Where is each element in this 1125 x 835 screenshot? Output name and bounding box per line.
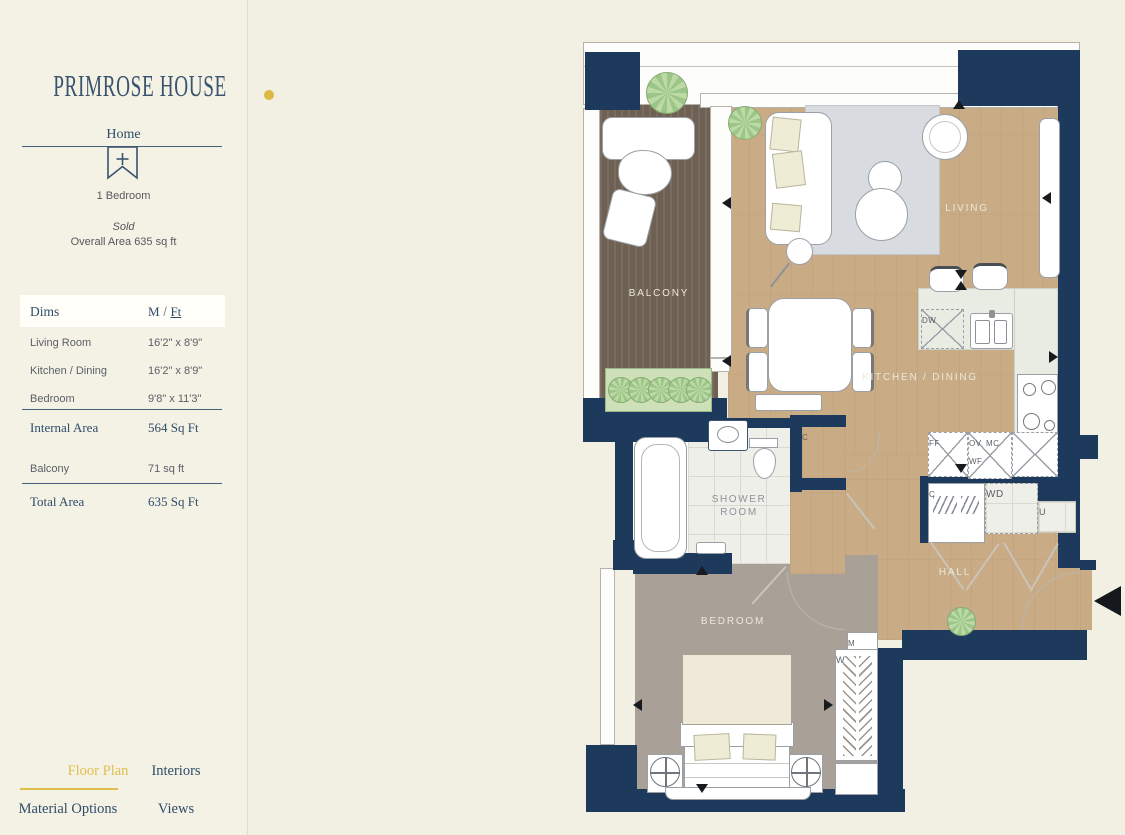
dim-row-label: Bedroom (30, 393, 75, 405)
shower-tray (696, 542, 726, 554)
divider (22, 409, 222, 410)
direction-marker (1042, 192, 1051, 204)
plant (728, 106, 762, 140)
bathtub (634, 437, 687, 559)
internal-area-label: Internal Area (30, 420, 98, 436)
direction-marker (696, 566, 708, 575)
tab-views[interactable]: Views (158, 801, 194, 818)
coffee-table-large (855, 188, 908, 241)
kitchen-sink (970, 313, 1013, 349)
toilet-cistern (749, 438, 778, 448)
entry-floor (1080, 568, 1092, 630)
wall (802, 478, 846, 490)
dining-table (768, 298, 852, 392)
wall (1080, 560, 1096, 570)
home-link[interactable]: Home (0, 127, 247, 143)
tab-interiors[interactable]: Interiors (151, 763, 200, 780)
pillow (693, 733, 730, 761)
direction-marker (722, 355, 731, 367)
storage-box (835, 763, 878, 795)
bed-duvet (682, 654, 792, 725)
hob-burner (1023, 413, 1040, 430)
brand-logo-dot-icon (264, 90, 274, 100)
sink-tap (989, 310, 995, 318)
balcony-balustrade (583, 108, 600, 440)
lobby-floor (790, 490, 845, 574)
direction-marker (955, 281, 967, 290)
wall (585, 52, 640, 110)
room-label-bedroom: BEDROOM (673, 616, 793, 627)
brand-logo: PRIMROSE HOUSE (0, 68, 247, 104)
total-area-label: Total Area (30, 494, 84, 510)
table-lamp-icon (791, 757, 821, 787)
washer-dryer: WD (985, 483, 1038, 534)
table-lamp-icon (650, 757, 680, 787)
page: PRIMROSE HOUSE Home 1 Bedroom Sold Overa… (0, 0, 1125, 835)
dim-row-value: 9'8" x 11'3" (148, 393, 201, 405)
armchair (922, 114, 968, 160)
balcony-row-label: Balcony (30, 463, 69, 475)
closet-label: C (802, 433, 808, 442)
basin-vanity (708, 420, 748, 451)
dims-header-row: Dims M / Ft (20, 295, 225, 327)
plant (646, 72, 688, 114)
direction-marker (824, 699, 833, 711)
washer-dryer-label: WD (986, 489, 1004, 500)
room-label-living: LIVING (927, 203, 1007, 214)
hob-burner (1041, 380, 1056, 395)
direction-marker (955, 464, 967, 473)
closet-floor: C (802, 427, 846, 478)
overall-area: Overall Area 635 sq ft (0, 236, 247, 248)
hob-burner (1023, 383, 1036, 396)
kitchen-unit (1012, 432, 1058, 477)
wardrobe: W (835, 649, 878, 761)
dim-row-label: Kitchen / Dining (30, 365, 107, 377)
wall (958, 50, 1080, 106)
plant (686, 377, 712, 403)
wall (586, 745, 637, 812)
coat-closet: C (928, 483, 985, 543)
status-badge: Sold (0, 221, 247, 233)
utility-label: U (1039, 507, 1046, 517)
unit-toggle-ft[interactable]: Ft (170, 304, 181, 319)
fridge-freezer-label: FF (929, 439, 940, 448)
balcony-row-value: 71 sq ft (148, 463, 184, 475)
microwave-label: MC (986, 439, 999, 448)
room-label-balcony: BALCONY (600, 288, 718, 299)
dim-row-label: Living Room (30, 337, 91, 349)
rail-icon (843, 656, 856, 756)
wall (1058, 435, 1098, 459)
rail-icon (961, 496, 979, 514)
room-label-hall: HALL (915, 567, 995, 578)
basin (717, 426, 739, 443)
oven-label: OV (969, 439, 982, 448)
wall (802, 415, 846, 427)
direction-marker (953, 100, 965, 109)
internal-area-value: 564 Sq Ft (148, 420, 199, 436)
sofa-cushion (772, 150, 806, 188)
sofa-cushion (769, 117, 801, 153)
dining-chair (852, 308, 874, 348)
wall (790, 415, 802, 492)
dining-chair (746, 352, 768, 392)
room-label-shower-room: SHOWER ROOM (694, 493, 784, 519)
floor-lamp (786, 238, 813, 265)
tab-material-options[interactable]: Material Options (19, 801, 118, 818)
dishwasher: DW (921, 309, 964, 349)
unit-type: 1 Bedroom (0, 190, 247, 202)
unit-toggle-slash: / (163, 304, 167, 319)
rail-icon (933, 496, 957, 514)
dims-header-label: Dims (30, 304, 59, 320)
active-tab-underline (20, 788, 118, 790)
meter-label: M (848, 639, 855, 648)
wall (902, 630, 1087, 660)
meter-cupboard: M (847, 632, 878, 650)
plant (947, 607, 976, 636)
utility-cupboard: U (1038, 501, 1076, 533)
direction-marker (696, 784, 708, 793)
wall (1038, 483, 1076, 501)
hob-burner (1044, 420, 1055, 431)
direction-marker (955, 270, 967, 279)
sink-basin (975, 320, 990, 344)
dim-row-value: 16'2" x 8'9" (148, 365, 202, 377)
wall (878, 648, 903, 797)
bedroom-window (600, 568, 615, 745)
tab-floor-plan[interactable]: Floor Plan (68, 763, 129, 780)
planter-box (605, 368, 712, 412)
sidebar: PRIMROSE HOUSE Home 1 Bedroom Sold Overa… (0, 0, 248, 835)
dishwasher-label: DW (922, 316, 936, 325)
direction-marker (722, 197, 731, 209)
balcony-table (618, 150, 672, 195)
dim-row-value: 16'2" x 8'9" (148, 337, 202, 349)
rail-icon (859, 656, 872, 756)
room-label-kitchen-dining: KITCHEN / DINING (845, 372, 995, 383)
total-area-value: 635 Sq Ft (148, 494, 199, 510)
floor-plan: C (583, 42, 1114, 812)
unit-toggle-m[interactable]: M (148, 304, 160, 319)
sofa-cushion (770, 203, 802, 233)
divider (22, 483, 222, 484)
balcony-door-mullion (710, 106, 732, 358)
sink-basin (994, 320, 1007, 344)
bed-footboard (665, 787, 811, 800)
direction-marker (633, 699, 642, 711)
pillow (743, 733, 777, 760)
wall (920, 483, 928, 543)
brand-logo-text: PRIMROSE HOUSE (53, 68, 227, 104)
unit-toggle: M / Ft (148, 304, 181, 320)
entrance-arrow-icon (1094, 586, 1121, 616)
direction-marker (1049, 351, 1058, 363)
sideboard (755, 394, 822, 411)
dining-chair (746, 308, 768, 348)
oven-stack: OV MC WF (968, 432, 1012, 479)
bar-stool (972, 263, 1008, 290)
bookmark-plus-icon[interactable] (106, 146, 139, 185)
wine-fridge-label: WF (969, 457, 982, 466)
